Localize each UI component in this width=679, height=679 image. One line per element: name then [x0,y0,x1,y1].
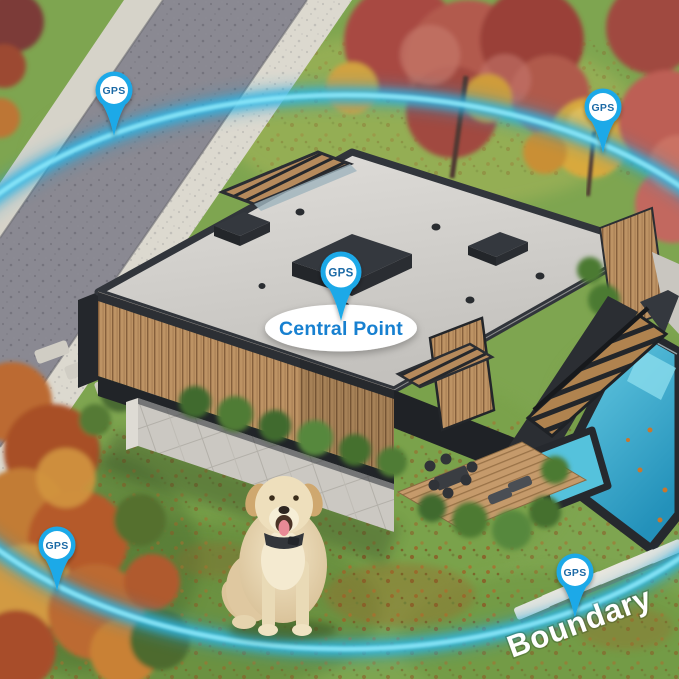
house-left-end-wall [78,292,98,388]
central-point-text: Central Point [279,318,403,340]
gps-pin-label: GPS [563,567,586,579]
illustration: Central Point GPS GPS GPS GPS GPS Bounda… [0,0,679,679]
gps-pin-label: GPS [102,85,125,97]
scene: Central Point GPS GPS GPS GPS GPS Bounda… [0,0,679,679]
gps-pin-label: GPS [45,540,68,552]
gps-pin-label: GPS [328,268,353,280]
gps-pin-label: GPS [591,102,614,114]
